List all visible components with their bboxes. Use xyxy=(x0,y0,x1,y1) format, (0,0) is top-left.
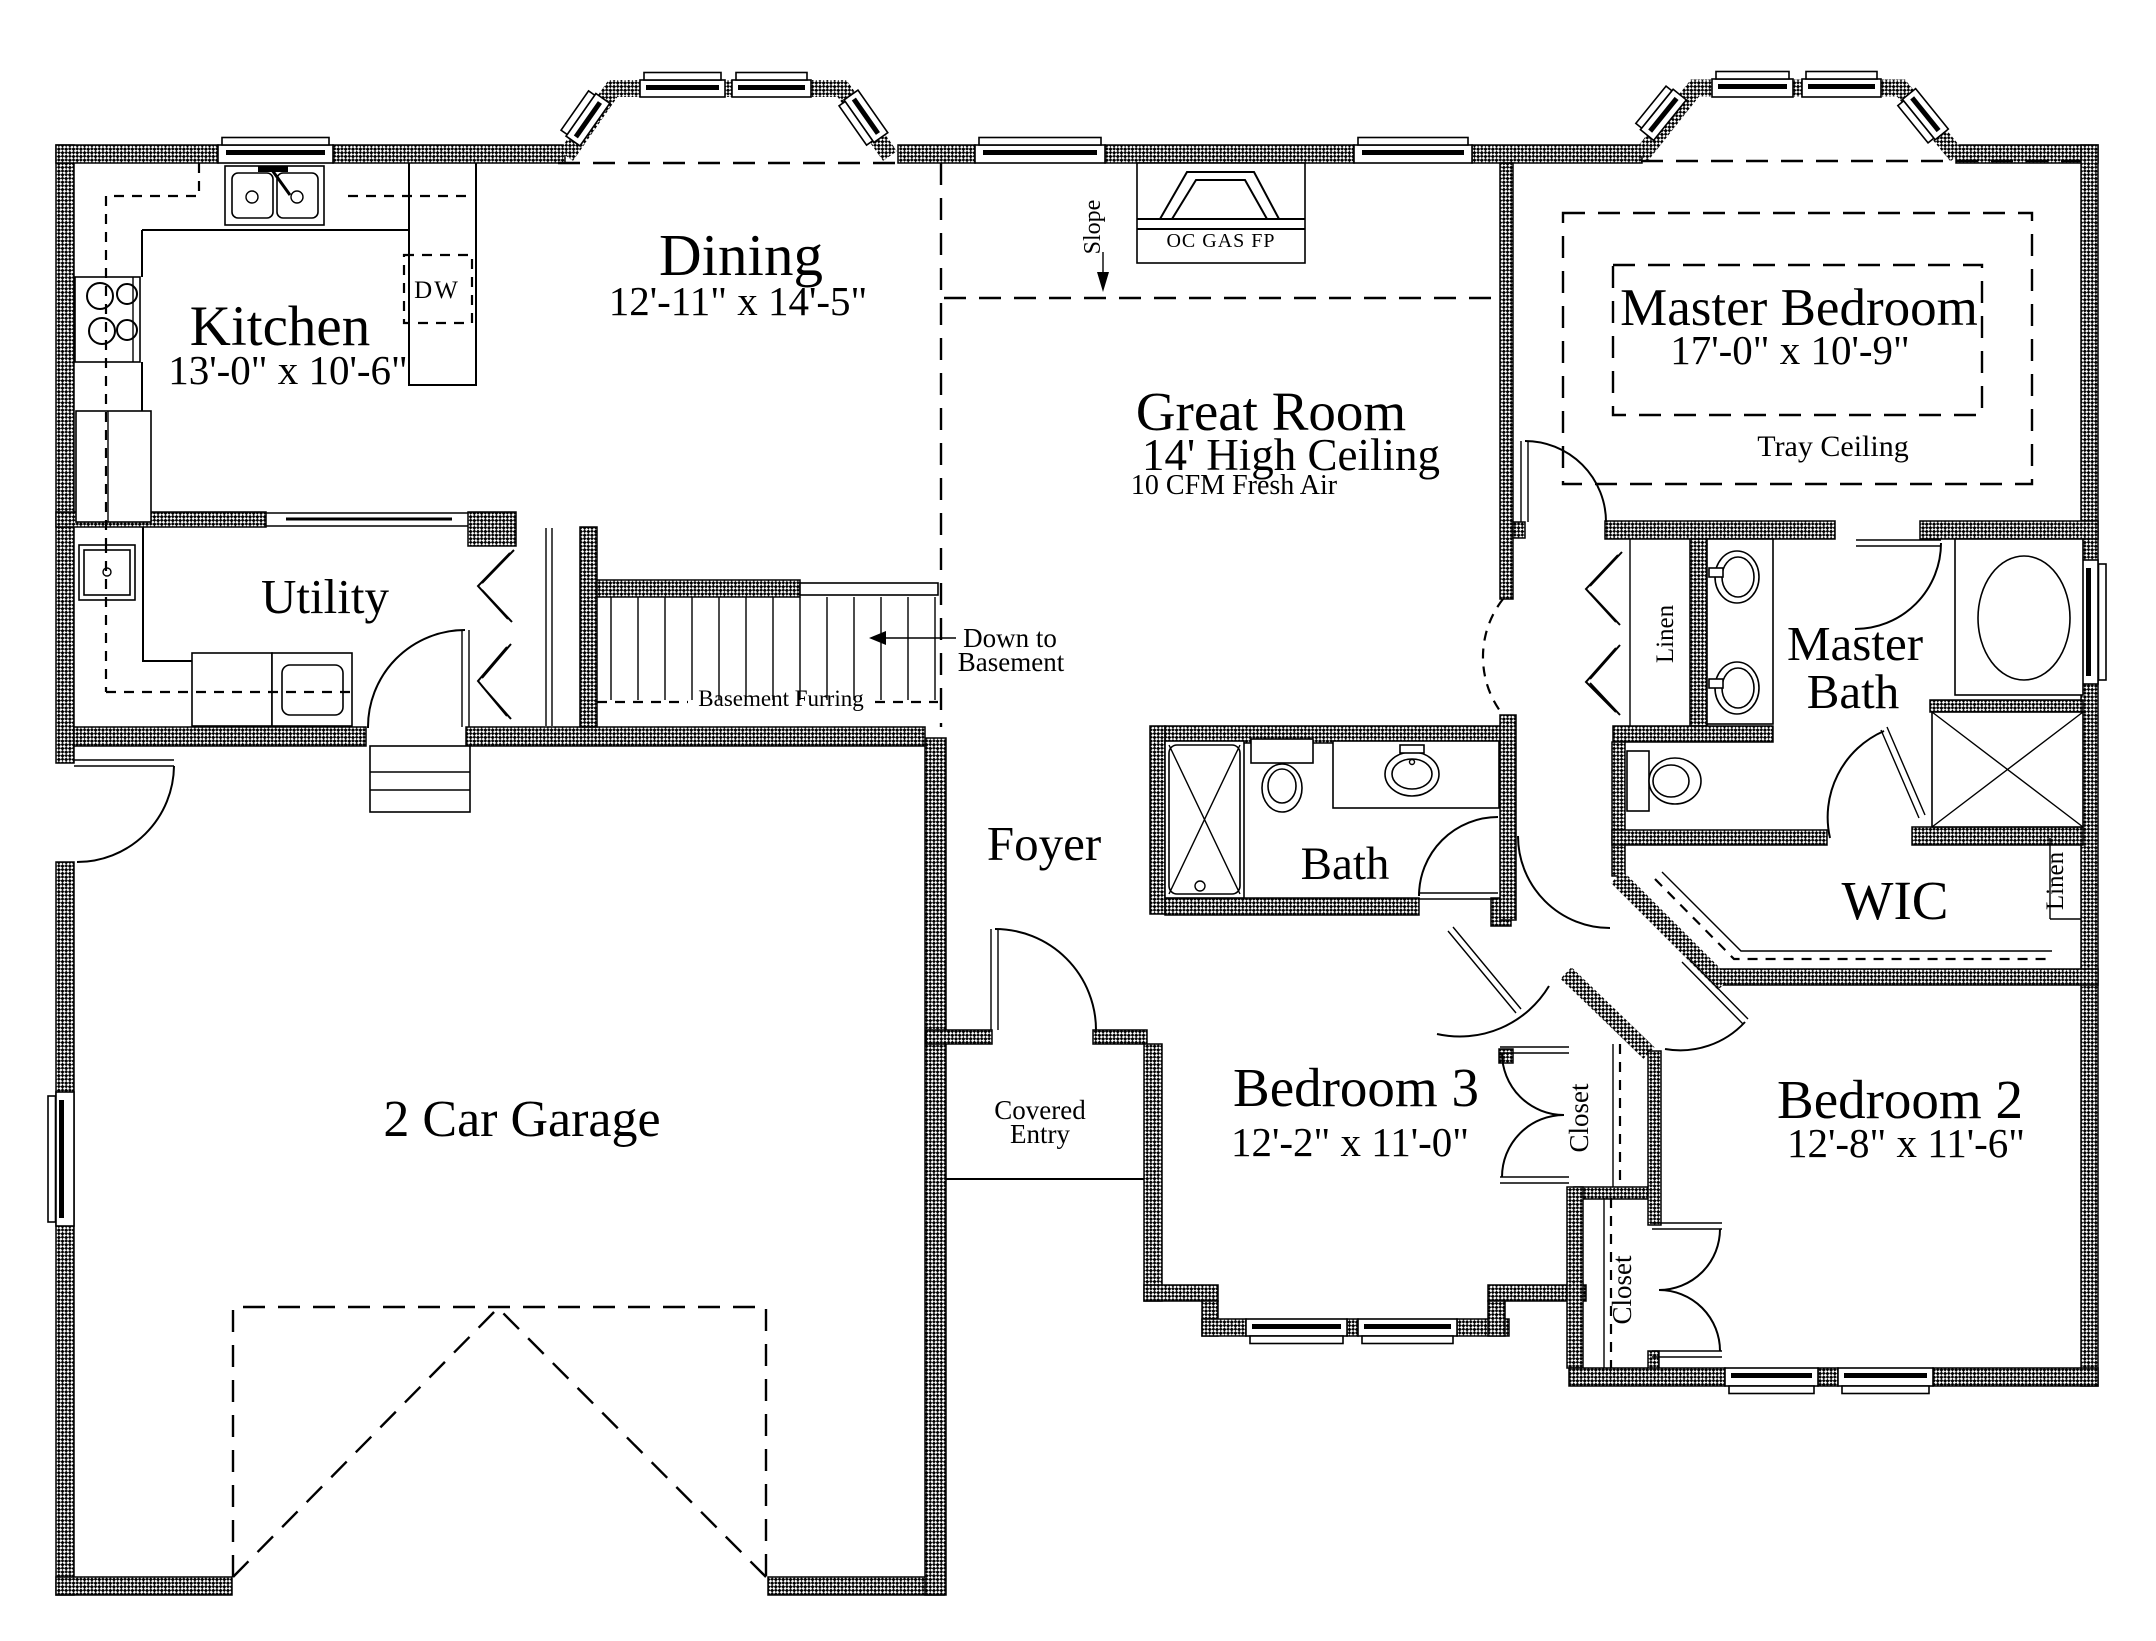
svg-text:12'-2" x 11'-0": 12'-2" x 11'-0" xyxy=(1231,1119,1469,1165)
svg-text:Basement Furring: Basement Furring xyxy=(698,686,864,711)
svg-text:Foyer: Foyer xyxy=(987,816,1101,871)
svg-text:2 Car Garage: 2 Car Garage xyxy=(383,1091,660,1148)
svg-text:Bedroom 3: Bedroom 3 xyxy=(1233,1057,1479,1118)
svg-text:Basement: Basement xyxy=(958,647,1065,677)
svg-text:Linen: Linen xyxy=(1652,604,1679,663)
svg-text:10 CFM Fresh Air: 10 CFM Fresh Air xyxy=(1131,470,1338,501)
svg-text:Bath: Bath xyxy=(1807,664,1900,719)
svg-text:12'-8" x 11'-6": 12'-8" x 11'-6" xyxy=(1787,1120,2025,1166)
svg-text:Master: Master xyxy=(1787,616,1923,671)
svg-text:Tray Ceiling: Tray Ceiling xyxy=(1757,430,1908,463)
svg-text:Bath: Bath xyxy=(1301,838,1390,890)
svg-text:Slope: Slope xyxy=(1080,200,1106,255)
svg-text:Closet: Closet xyxy=(1564,1083,1594,1153)
svg-text:WIC: WIC xyxy=(1842,870,1949,931)
svg-text:Utility: Utility xyxy=(261,569,389,624)
svg-text:Entry: Entry xyxy=(1010,1119,1070,1149)
svg-text:12'-11" x 14'-5": 12'-11" x 14'-5" xyxy=(609,278,868,324)
svg-text:DW: DW xyxy=(414,277,460,304)
svg-text:Linen: Linen xyxy=(2042,851,2069,910)
svg-text:OC GAS FP: OC GAS FP xyxy=(1166,230,1275,252)
svg-text:Closet: Closet xyxy=(1607,1255,1637,1325)
svg-text:17'-0" x 10'-9": 17'-0" x 10'-9" xyxy=(1670,327,1910,373)
svg-text:13'-0" x 10'-6": 13'-0" x 10'-6" xyxy=(168,347,408,393)
